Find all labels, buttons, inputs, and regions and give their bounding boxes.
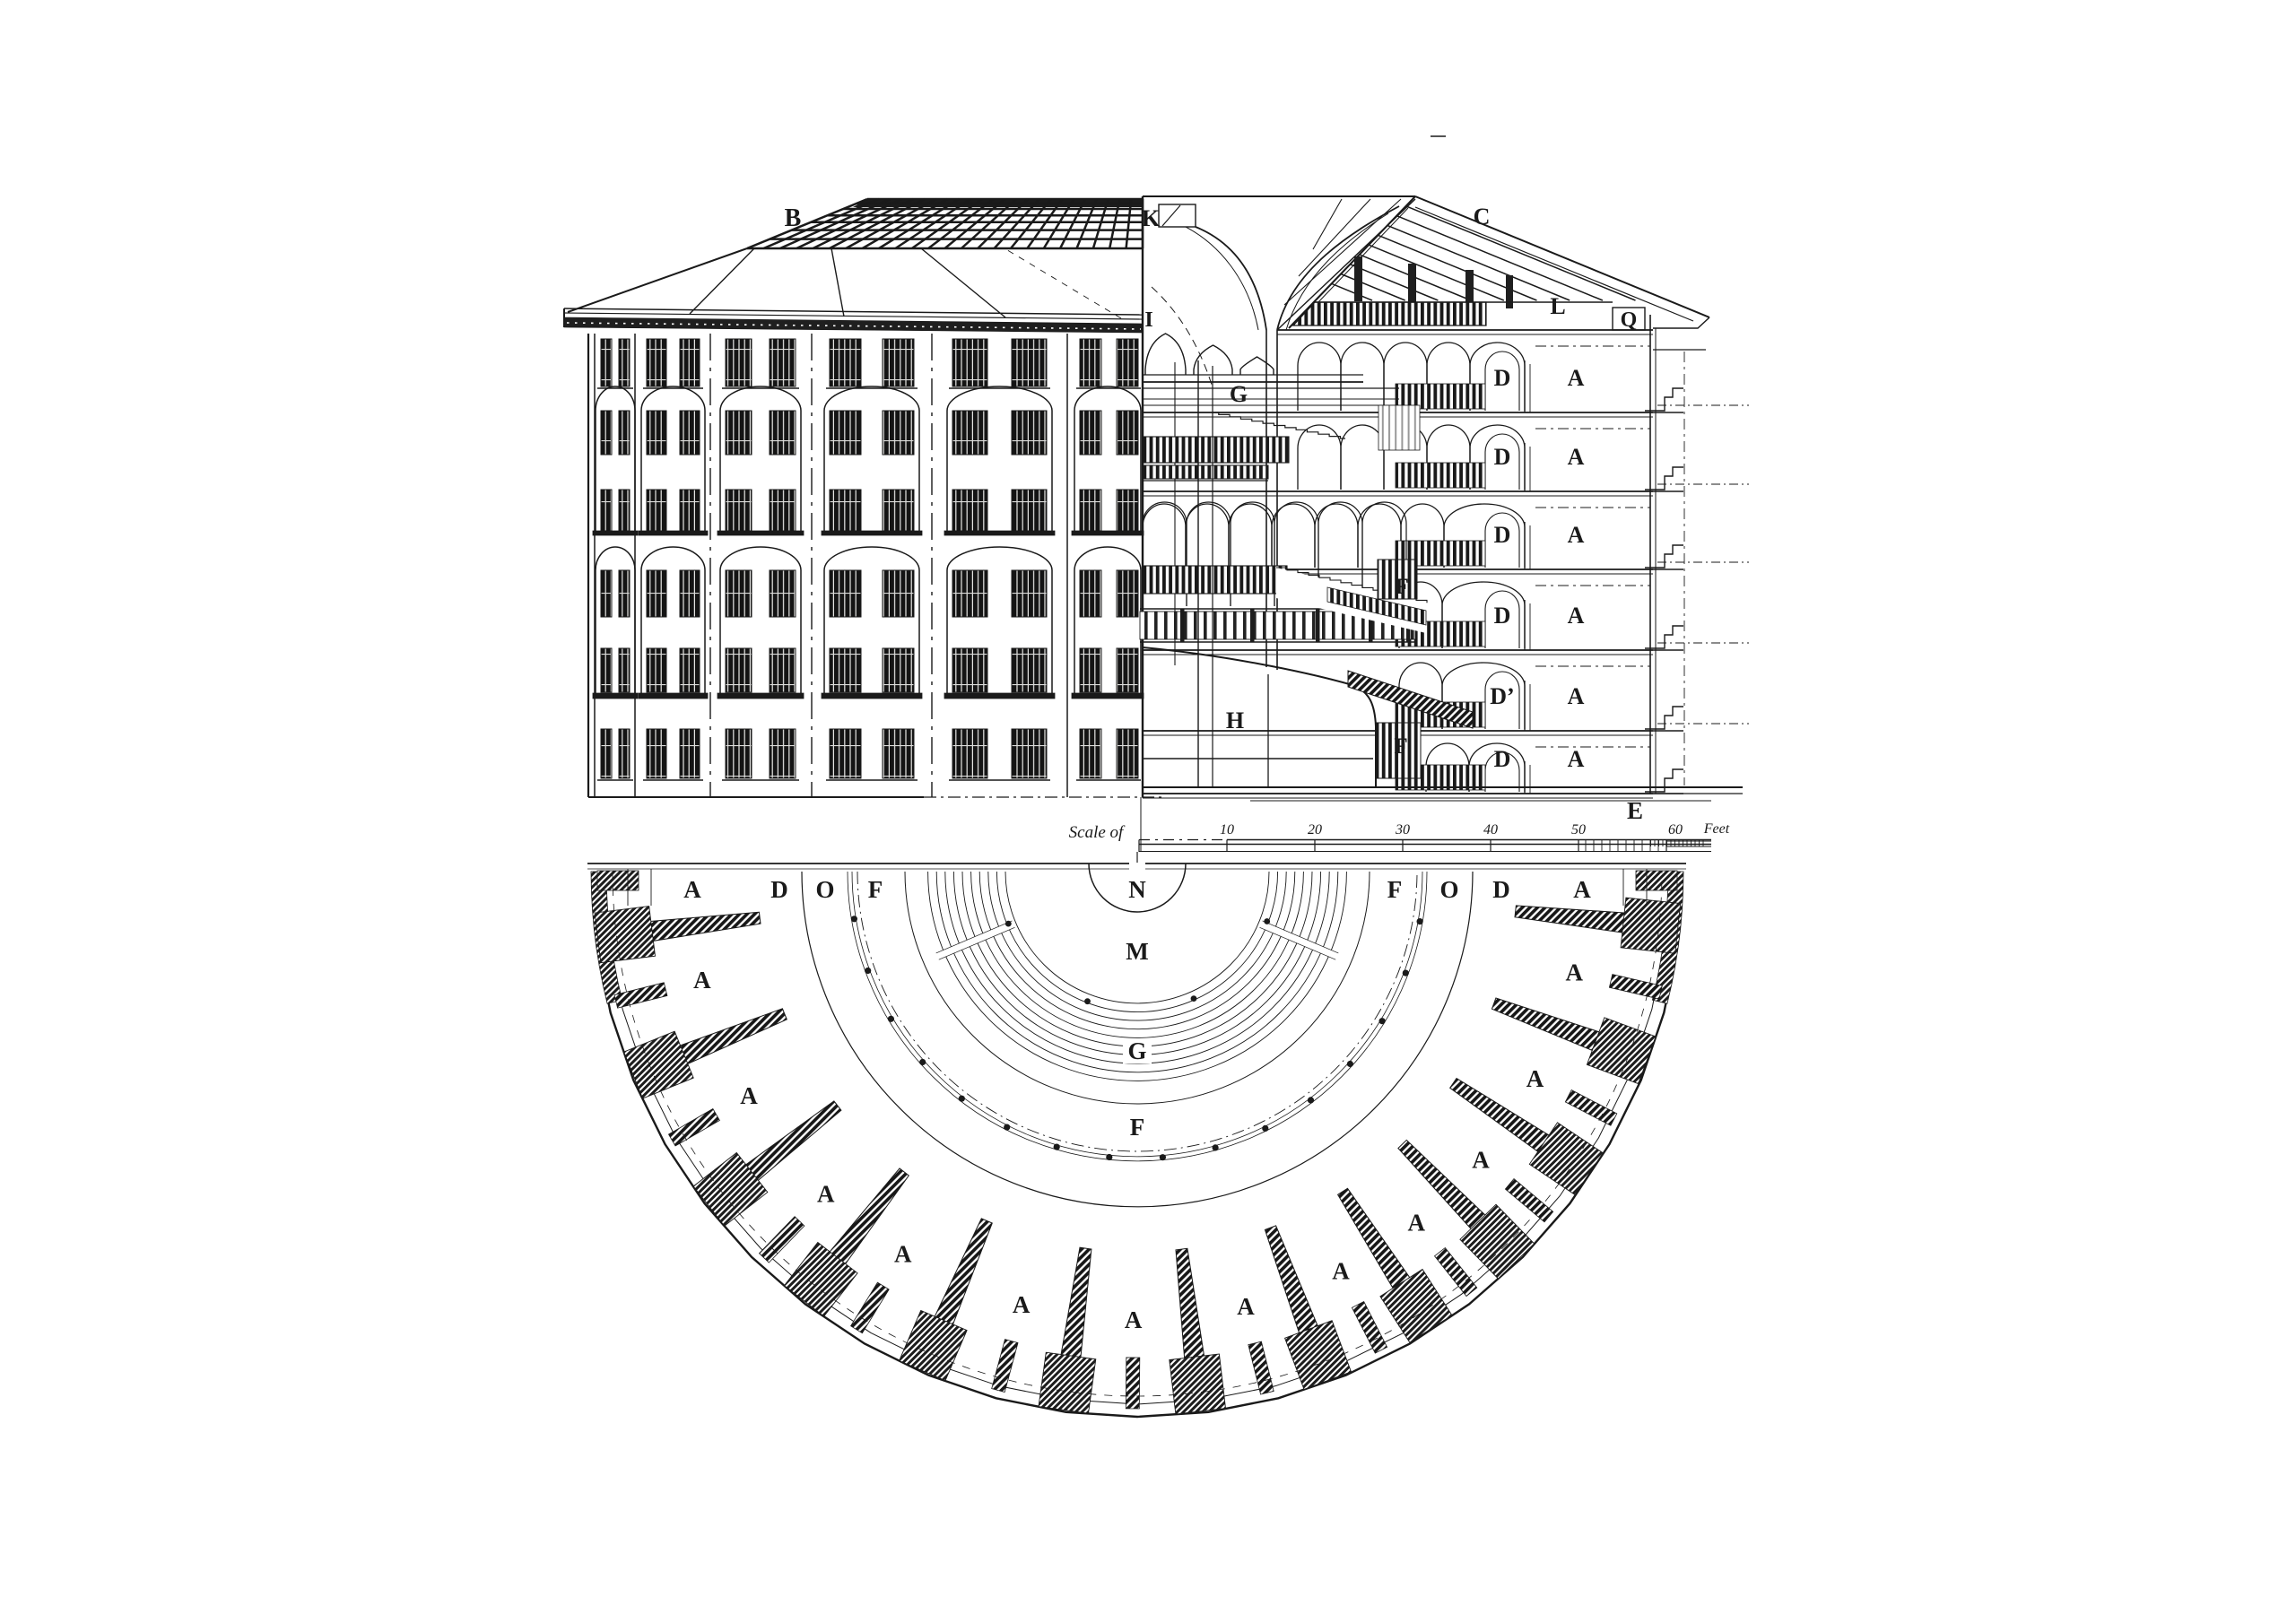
svg-text:D: D [1494,603,1511,629]
svg-text:20: 20 [1308,822,1322,838]
svg-text:A: A [1568,365,1585,391]
svg-text:A: A [1568,522,1585,548]
svg-text:A: A [1565,959,1583,986]
svg-text:40: 40 [1483,822,1498,838]
svg-text:E: E [1627,797,1643,824]
svg-text:N: N [1128,876,1146,903]
svg-text:L: L [1550,293,1565,319]
svg-text:A: A [1568,444,1585,470]
svg-text:K: K [1142,205,1161,231]
svg-text:Q: Q [1621,308,1638,332]
svg-text:O: O [815,876,834,903]
svg-text:B: B [785,204,802,232]
svg-text:60: 60 [1668,822,1683,838]
svg-text:F: F [1395,575,1408,599]
svg-text:D’: D’ [1490,683,1514,709]
svg-text:F: F [1394,734,1407,759]
svg-text:A: A [1332,1258,1350,1285]
svg-text:F: F [1130,1114,1145,1141]
svg-text:I: I [1144,308,1152,332]
svg-text:A: A [1237,1293,1255,1320]
svg-text:30: 30 [1395,822,1410,838]
svg-text:A: A [1568,603,1585,629]
svg-text:Feet: Feet [1703,821,1730,837]
svg-text:A: A [1568,683,1585,709]
svg-text:G: G [1127,1037,1146,1064]
svg-text:A: A [1472,1146,1490,1173]
svg-text:D: D [1492,876,1510,903]
svg-text:Scale of: Scale of [1069,823,1126,842]
svg-text:A: A [894,1240,912,1267]
svg-text:A: A [1408,1209,1426,1236]
svg-text:C: C [1474,204,1491,230]
svg-text:O: O [1439,876,1458,903]
svg-text:A: A [683,876,701,903]
svg-text:A: A [693,967,711,994]
svg-text:10: 10 [1220,822,1234,838]
svg-text:D: D [1494,444,1511,470]
svg-text:F: F [868,876,883,903]
svg-text:50: 50 [1571,822,1586,838]
svg-text:M: M [1126,938,1148,965]
svg-text:A: A [817,1181,835,1208]
svg-text:A: A [1013,1291,1031,1318]
svg-text:A: A [1568,746,1585,772]
svg-text:F: F [1387,876,1403,903]
svg-text:H: H [1226,707,1244,733]
svg-text:A: A [1573,876,1591,903]
svg-text:D: D [1494,365,1511,391]
svg-text:D: D [1494,522,1511,548]
svg-text:A: A [1125,1306,1143,1333]
svg-text:G: G [1230,381,1248,407]
svg-text:D: D [1494,746,1511,772]
svg-text:D: D [770,876,788,903]
svg-text:A: A [1526,1065,1544,1092]
svg-text:A: A [740,1082,758,1109]
